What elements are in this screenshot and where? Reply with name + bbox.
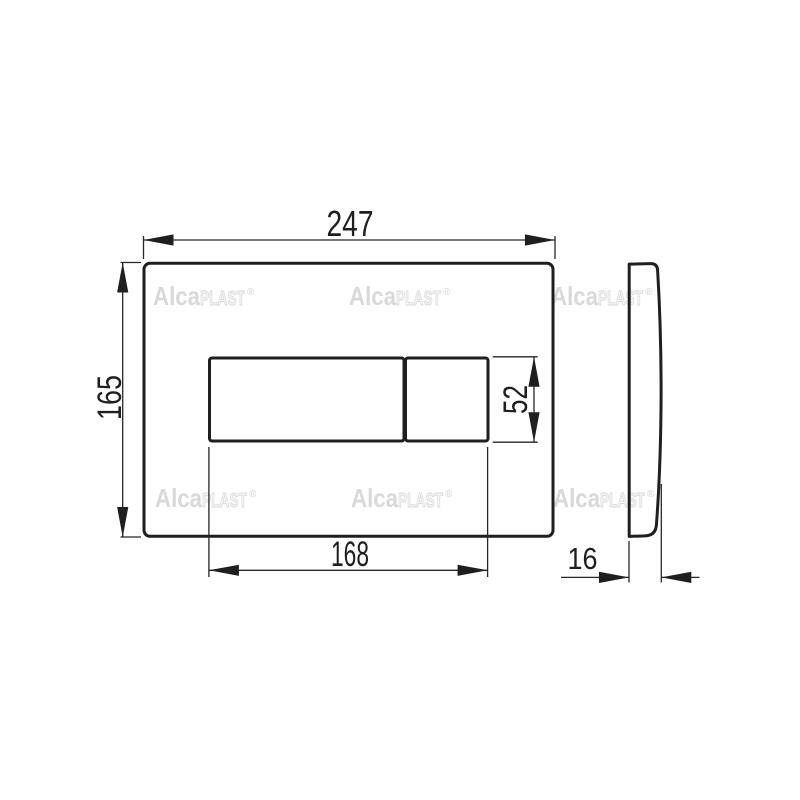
svg-text:PLAST: PLAST: [598, 288, 643, 310]
svg-text:16: 16: [568, 541, 598, 576]
svg-text:Alca: Alca: [155, 483, 202, 513]
svg-text:PLAST: PLAST: [200, 288, 245, 310]
svg-text:PLAST: PLAST: [600, 490, 645, 512]
svg-text:Alca: Alca: [553, 483, 600, 513]
svg-text:Alca: Alca: [351, 483, 398, 513]
svg-text:Alca: Alca: [551, 281, 598, 311]
svg-text:®: ®: [247, 287, 255, 298]
svg-text:168: 168: [331, 535, 369, 574]
svg-text:Alca: Alca: [153, 281, 200, 311]
svg-text:®: ®: [647, 489, 655, 500]
svg-text:®: ®: [445, 489, 453, 500]
svg-text:PLAST: PLAST: [398, 490, 443, 512]
svg-text:®: ®: [249, 489, 257, 500]
svg-text:247: 247: [327, 203, 374, 244]
svg-text:52: 52: [497, 385, 535, 414]
svg-text:PLAST: PLAST: [396, 288, 441, 310]
svg-text:Alca: Alca: [349, 281, 396, 311]
svg-text:®: ®: [645, 287, 653, 298]
svg-text:165: 165: [91, 375, 129, 420]
svg-text:®: ®: [443, 287, 451, 298]
